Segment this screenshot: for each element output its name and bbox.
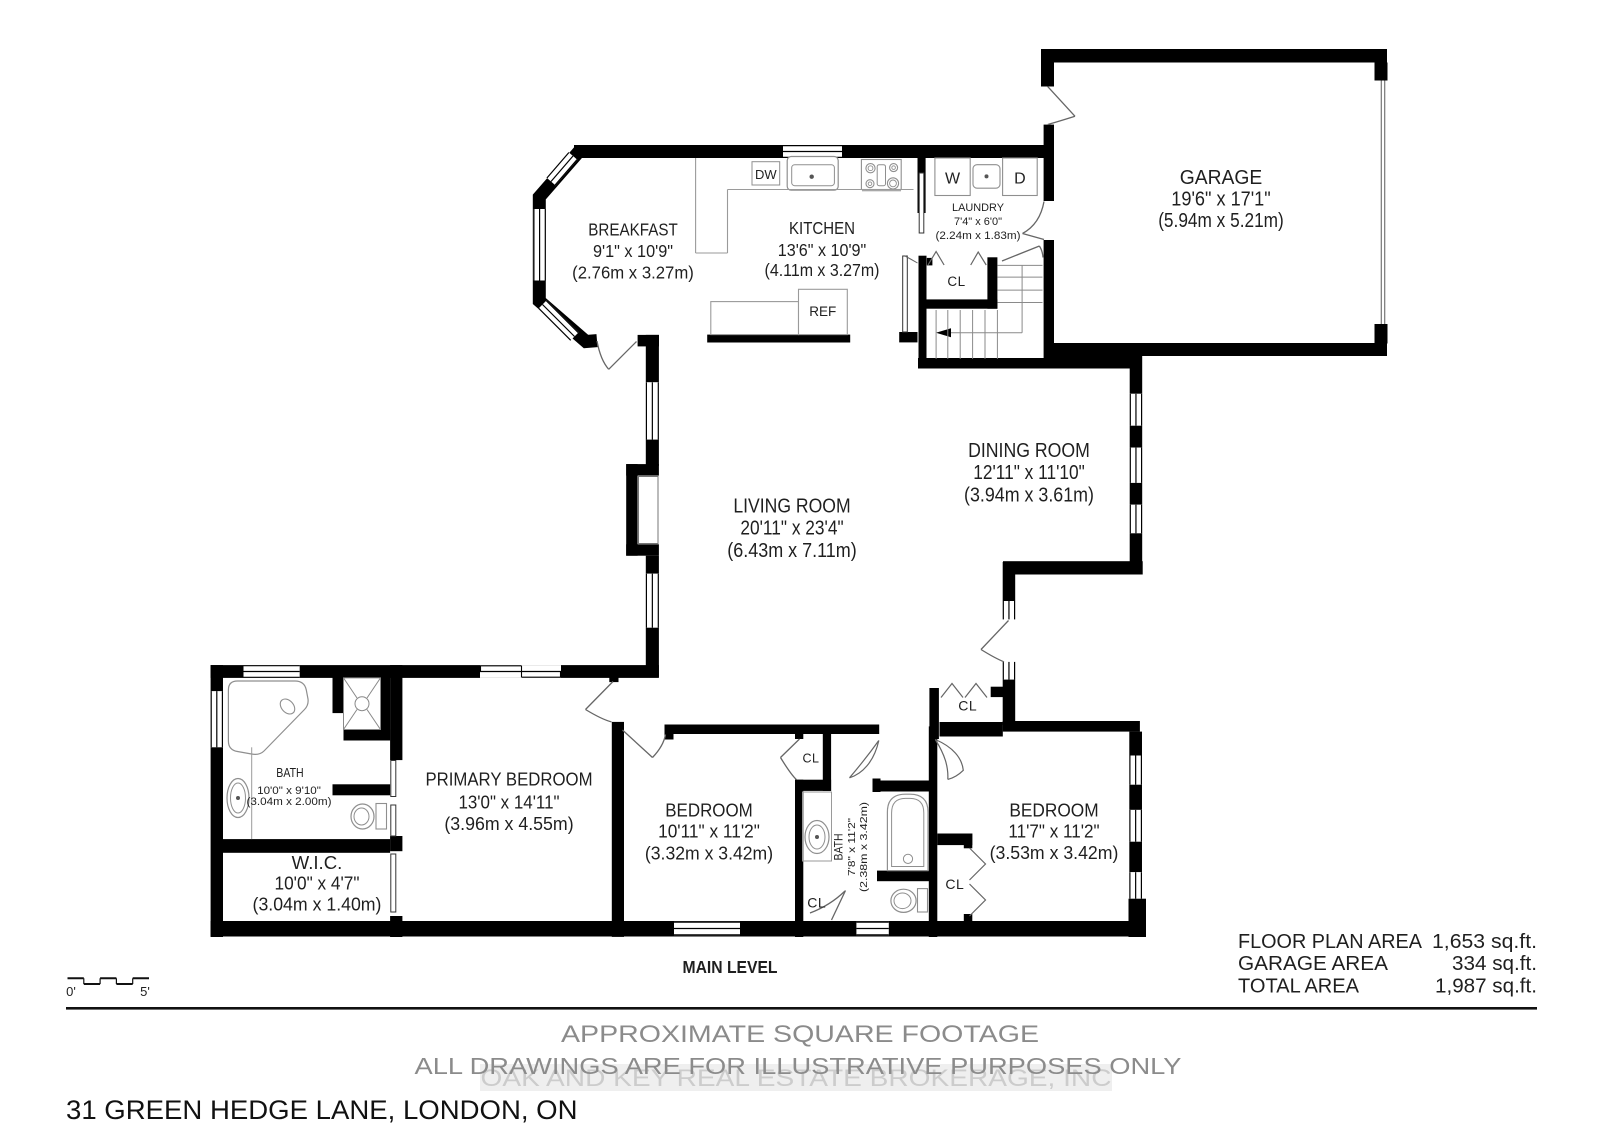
svg-text:(2.76m x 3.27m): (2.76m x 3.27m) — [572, 263, 694, 283]
svg-text:BATH: BATH — [832, 834, 846, 861]
svg-text:BEDROOM: BEDROOM — [665, 800, 753, 821]
svg-text:GARAGE AREA: GARAGE AREA — [1238, 953, 1389, 975]
svg-text:LIVING ROOM: LIVING ROOM — [733, 496, 850, 518]
svg-text:(3.96m x 4.55m): (3.96m x 4.55m) — [444, 814, 573, 834]
svg-text:MAIN LEVEL: MAIN LEVEL — [683, 957, 778, 977]
svg-text:DINING ROOM: DINING ROOM — [968, 440, 1090, 462]
svg-text:10'0" x 4'7": 10'0" x 4'7" — [275, 874, 360, 894]
svg-text:(3.04m x 1.40m): (3.04m x 1.40m) — [253, 895, 382, 915]
svg-text:5': 5' — [140, 984, 150, 999]
svg-text:BEDROOM: BEDROOM — [1009, 800, 1098, 821]
svg-text:12'11" x 11'10": 12'11" x 11'10" — [973, 462, 1085, 484]
svg-text:(2.38m x 3.42m): (2.38m x 3.42m) — [858, 802, 870, 892]
svg-text:REF: REF — [809, 304, 836, 319]
svg-text:ALL DRAWINGS ARE FOR ILLUSTRAT: ALL DRAWINGS ARE FOR ILLUSTRATIVE PURPOS… — [415, 1053, 1182, 1079]
svg-text:(6.43m x 7.11m): (6.43m x 7.11m) — [727, 540, 857, 562]
svg-text:CL: CL — [958, 697, 977, 713]
svg-text:LAUNDRY: LAUNDRY — [952, 202, 1005, 214]
svg-text:CL: CL — [945, 876, 964, 892]
svg-text:11'7" x 11'2": 11'7" x 11'2" — [1008, 821, 1099, 842]
svg-text:334 sq.ft.: 334 sq.ft. — [1452, 953, 1537, 975]
svg-text:(5.94m x 5.21m): (5.94m x 5.21m) — [1158, 210, 1284, 232]
svg-text:BATH: BATH — [276, 766, 303, 780]
svg-text:1,987 sq.ft.: 1,987 sq.ft. — [1435, 976, 1537, 998]
svg-text:GARAGE: GARAGE — [1180, 167, 1263, 189]
svg-text:CL: CL — [807, 894, 826, 910]
svg-text:(4.11m x 3.27m): (4.11m x 3.27m) — [765, 260, 880, 280]
svg-text:(3.94m x 3.61m): (3.94m x 3.61m) — [964, 484, 1094, 506]
svg-text:1,653 sq.ft.: 1,653 sq.ft. — [1432, 931, 1537, 953]
svg-text:10'11" x 11'2": 10'11" x 11'2" — [658, 821, 760, 842]
svg-text:9'1" x 10'9": 9'1" x 10'9" — [593, 241, 673, 261]
svg-text:BREAKFAST: BREAKFAST — [588, 220, 678, 240]
svg-text:CL: CL — [803, 752, 820, 766]
svg-text:20'11" x 23'4": 20'11" x 23'4" — [740, 518, 843, 540]
svg-text:D: D — [1014, 171, 1026, 188]
svg-text:KITCHEN: KITCHEN — [789, 218, 855, 238]
svg-text:FLOOR PLAN AREA: FLOOR PLAN AREA — [1238, 931, 1423, 953]
svg-text:7'8" x 11'2": 7'8" x 11'2" — [846, 818, 858, 876]
svg-text:DW: DW — [755, 167, 777, 182]
svg-text:(2.24m x 1.83m): (2.24m x 1.83m) — [936, 230, 1021, 242]
svg-text:(3.32m x 3.42m): (3.32m x 3.42m) — [645, 843, 773, 864]
svg-text:APPROXIMATE SQUARE FOOTAGE: APPROXIMATE SQUARE FOOTAGE — [561, 1021, 1039, 1048]
svg-text:PRIMARY BEDROOM: PRIMARY BEDROOM — [425, 770, 592, 790]
svg-text:31 GREEN HEDGE LANE, LONDON, O: 31 GREEN HEDGE LANE, LONDON, ON — [66, 1095, 578, 1125]
svg-text:13'6" x 10'9": 13'6" x 10'9" — [778, 240, 867, 260]
svg-text:CL: CL — [947, 274, 965, 289]
svg-text:W.I.C.: W.I.C. — [292, 853, 343, 873]
svg-text:13'0" x 14'11": 13'0" x 14'11" — [458, 793, 559, 813]
svg-text:0': 0' — [66, 984, 76, 999]
svg-text:W: W — [945, 171, 961, 188]
svg-text:(3.04m x 2.00m): (3.04m x 2.00m) — [247, 796, 332, 808]
svg-text:TOTAL AREA: TOTAL AREA — [1238, 976, 1360, 998]
svg-text:7'4" x 6'0": 7'4" x 6'0" — [954, 216, 1002, 228]
svg-text:19'6" x 17'1": 19'6" x 17'1" — [1171, 189, 1270, 211]
svg-text:(3.53m x 3.42m): (3.53m x 3.42m) — [990, 842, 1119, 863]
